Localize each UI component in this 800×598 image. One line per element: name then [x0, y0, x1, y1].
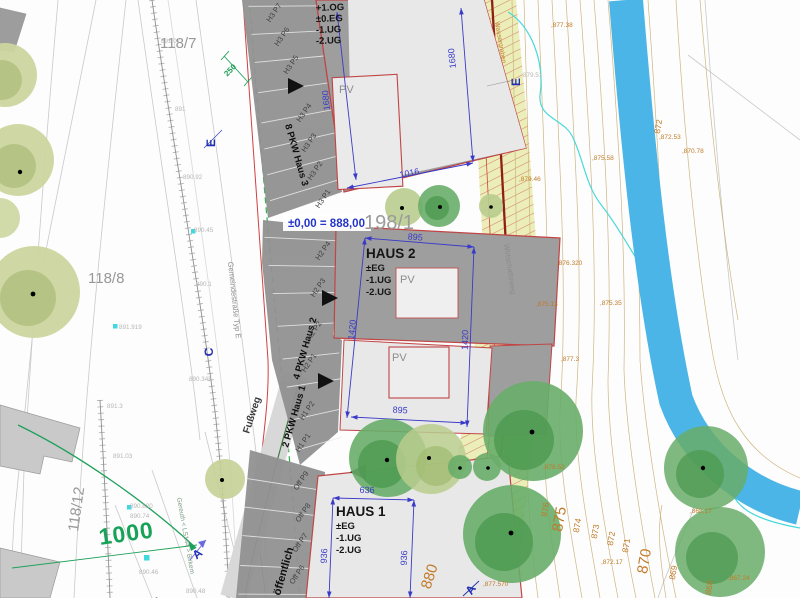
- site-plan-window: 118/7118/8118/12118/12198/1±0,00 = 888,0…: [0, 0, 800, 598]
- label-buildings-haus1-levels-0: ±EG: [336, 521, 355, 532]
- label-sections-e2: E: [204, 139, 218, 147]
- label-sections-c: C: [202, 347, 216, 356]
- label-spots_orange-10: ,868.17: [690, 508, 712, 515]
- tree: [463, 485, 561, 583]
- label-spots_orange-11: ,872.17: [601, 559, 623, 566]
- label-buildings-haus1-dim_right: 936: [399, 550, 410, 565]
- label-spots_gray-1: 891.07: [161, 38, 181, 45]
- label-spots_orange-2: ,875.58: [592, 155, 614, 162]
- label-buildings-haus3-levels-1: ±0.EG: [316, 13, 343, 25]
- tree: [418, 185, 460, 227]
- label-spots_orange-9: ,876.52: [543, 464, 565, 471]
- label-spots_gray-7: 890.345: [189, 376, 212, 383]
- label-buildings-haus1-levels-2: -2.UG: [336, 545, 361, 556]
- label-buildings-haus2-dim_right: 1420: [460, 330, 471, 350]
- label-spots_gray-2: 891: [175, 106, 186, 113]
- label-buildings-haus2-levels-1: -1.UG: [366, 275, 391, 286]
- label-sections-e1: E: [509, 78, 523, 86]
- label-buildings-haus1-dim_top: 636: [359, 485, 374, 495]
- tree: [479, 194, 503, 218]
- label-parcels-e: 198/1: [364, 212, 414, 234]
- label-buildings-haus3-pv: PV: [339, 84, 354, 96]
- label-spots_gray-6: 891.919: [119, 324, 142, 331]
- label-buildings-haus3-levels-3: -2.UG: [316, 35, 342, 47]
- label-spots_gray-0: 879.51: [523, 72, 543, 79]
- label-spots_orange-1: ,879.46: [519, 176, 541, 183]
- label-spots_orange-8: ,877.3: [561, 356, 579, 363]
- label-spots_orange-5: ,876.320: [557, 260, 583, 267]
- label-spots_gray-9: 891.03: [113, 453, 133, 460]
- label-buildings-haus2-pv2: PV: [392, 352, 407, 364]
- label-spots_gray-10: 890.820: [130, 503, 153, 510]
- label-buildings-haus3-dim_left: 1680: [320, 90, 332, 111]
- label-spots_gray-4: 890.45: [194, 227, 214, 234]
- label-spots_orange-6: ,875.13: [536, 301, 558, 308]
- label-spots_gray-12: 890.46: [139, 569, 159, 576]
- label-buildings-haus2-name: HAUS 2: [366, 246, 416, 261]
- tree: [664, 426, 748, 510]
- tree: [448, 455, 472, 479]
- label-buildings-haus1-name: HAUS 1: [336, 504, 386, 519]
- label-buildings-haus2-levels-0: ±EG: [366, 263, 385, 274]
- label-parcels-b: 118/8: [88, 270, 124, 287]
- label-spots_gray-5: 890.1: [196, 281, 212, 288]
- label-buildings-haus2-levels-2: -2.UG: [366, 287, 391, 298]
- tree: [675, 507, 765, 597]
- label-spots_orange-13: ,877.570: [483, 581, 509, 588]
- site-plan-canvas[interactable]: 118/7118/8118/12118/12198/1±0,00 = 888,0…: [0, 0, 800, 598]
- label-spots_gray-8: 891.3: [107, 403, 123, 410]
- label-buildings-haus2-dim_bottom: 895: [392, 405, 408, 416]
- label-datum: ±0,00 = 888,00: [288, 218, 365, 230]
- label-buildings-haus1-dim_left: 936: [319, 548, 330, 563]
- label-buildings-haus2-pv1: PV: [400, 274, 415, 286]
- label-spots_orange-0: ,877.38: [551, 22, 573, 29]
- tree: [483, 381, 583, 481]
- label-buildings-haus3-levels-2: -1.UG: [316, 24, 342, 36]
- label-spots_gray-3: 890.92: [183, 174, 203, 181]
- label-spots_gray-11: 890.74: [130, 513, 150, 520]
- label-buildings-haus2-dim_top: 895: [407, 231, 423, 242]
- tree: [205, 459, 245, 499]
- label-spots_orange-7: ,875.35: [600, 300, 622, 307]
- label-buildings-haus1-levels-1: -1.UG: [336, 533, 361, 544]
- label-spots_orange-12: ,867.24: [728, 575, 750, 582]
- label-buildings-haus3-dim_right: 1680: [446, 48, 458, 69]
- label-buildings-haus2-dim_left: 1420: [346, 319, 358, 340]
- label-spots_orange-3: ,870.78: [682, 148, 704, 155]
- label-spots_orange-4: ,872.53: [659, 134, 681, 141]
- label-spots_gray-13: 890.48: [186, 588, 206, 595]
